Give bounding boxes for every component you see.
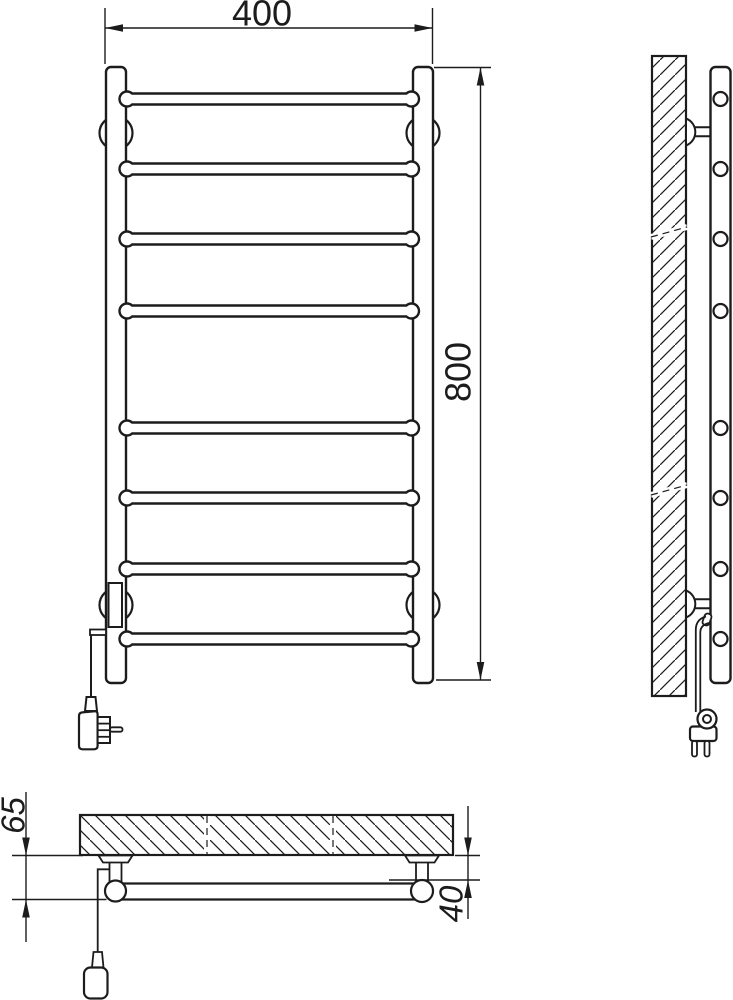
power-plug-front [79,697,123,749]
right-post [413,67,433,683]
rung [120,304,419,319]
rungs [120,92,419,647]
arrowhead-down [464,838,472,856]
bracket-flange [686,119,695,146]
plug-back-circle [698,710,717,729]
plug-strain-relief [85,697,97,711]
arrowhead-right [415,24,433,32]
arrowhead-up [22,900,30,918]
rung-end [714,162,728,176]
rung [120,421,419,436]
dimension-width: 400 [105,0,433,64]
arrowhead-left [105,24,123,32]
plug-body [79,711,98,749]
rung [120,232,419,247]
plug-body-plan [84,968,108,999]
arrowhead-down [22,838,30,856]
power-cord-front [90,630,106,699]
rung-end [714,421,728,435]
arrowhead-up [477,68,485,86]
dimension-depth-label: 65 [0,797,32,834]
bracket-plate [99,856,133,863]
arrowhead-down [477,662,485,680]
wall-section [652,56,686,696]
cord-wire [98,869,110,952]
rung [120,92,419,107]
plug-pin [110,727,123,731]
post-side [711,67,731,683]
rung [120,162,419,177]
rail-tube-plan [105,880,433,902]
technical-drawing-page: 400 800 [0,0,733,1000]
rung-end [714,92,728,106]
rung [120,561,419,576]
dimension-height: 800 [434,68,491,681]
cord-outlet-box [90,630,106,636]
bracket-right-plan [405,856,439,883]
rung [120,491,419,506]
post-end-cap [411,880,433,902]
dimension-width-label: 400 [232,0,292,34]
rung-end [714,232,728,246]
bracket-top-side [686,119,712,146]
heating-element [109,583,123,627]
plug-pin [705,741,710,757]
bracket-plate [405,856,439,863]
rung-end [714,632,728,646]
dimension-offset-label: 40 [433,885,470,922]
front-view: 400 800 [79,0,491,749]
mounting-flanges [100,117,440,622]
rung-end [714,562,728,576]
towel-rail-drawing-canvas: 400 800 [0,0,733,1000]
rung-end [714,491,728,505]
side-view [651,56,731,757]
plug-pin [692,741,697,757]
rung [120,632,419,647]
post-end-cap [105,881,126,902]
wall-section-plan [80,815,453,855]
plan-view: 65 40 [0,792,480,999]
power-plug-side [690,710,717,757]
plug-strain-relief [92,952,104,968]
bracket-flange [686,591,695,618]
cord-wire-inner [700,623,709,712]
dimension-height-label: 800 [438,342,479,402]
rung-end [714,304,728,318]
